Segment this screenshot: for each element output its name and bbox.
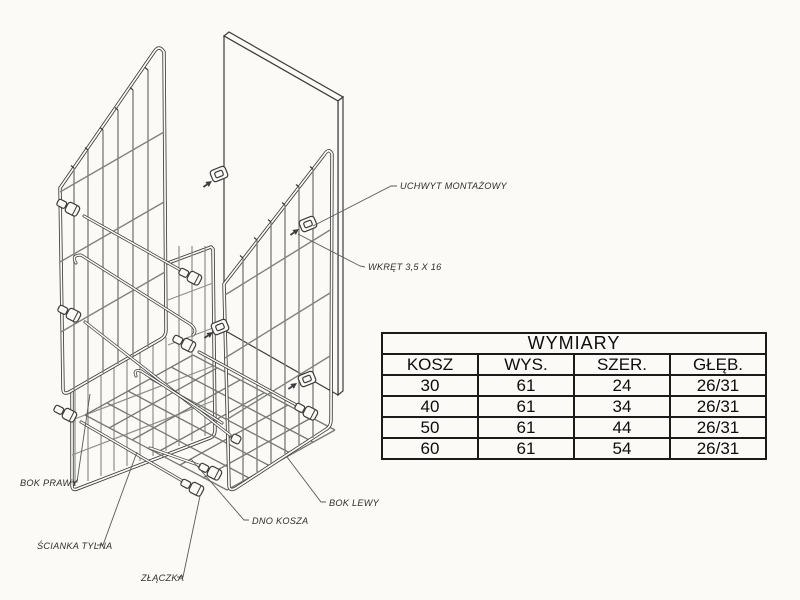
connector-cap-glyph [230,433,242,444]
cell-wys: 61 [478,417,574,438]
label-scianka-tylna: ŚCIANKA TYLNA [37,540,112,551]
connector-zlaczka-glyph [179,477,204,497]
cell-gleb: 26/31 [670,417,766,438]
connector-zlaczka-glyph [56,303,81,323]
table-row: 50 61 44 26/31 [382,417,766,438]
cell-kosz: 60 [382,438,478,459]
table-header-row: KOSZ WYS. SZER. GŁĘB. [382,354,766,375]
table-row: 60 61 54 26/31 [382,438,766,459]
label-bok-prawy: BOK PRAWY [20,478,78,488]
connector-zlaczka-glyph [177,266,202,286]
cell-gleb: 26/31 [670,396,766,417]
cell-szer: 44 [574,417,670,438]
column-header-szer: SZER. [574,354,670,375]
cell-szer: 24 [574,375,670,396]
connector-zlaczka-glyph [52,403,77,423]
label-wkret: WKRĘT 3,5 X 16 [368,262,442,272]
cell-gleb: 26/31 [670,375,766,396]
exploded-view-drawing: UCHWYT MONTAŻOWY WKRĘT 3,5 X 16 BOK PRAW… [0,0,800,600]
column-header-wys: WYS. [478,354,574,375]
cell-kosz: 30 [382,375,478,396]
label-bok-lewy: BOK LEWY [329,498,380,508]
cell-kosz: 50 [382,417,478,438]
panel-bok-prawy [60,48,166,393]
label-dno-kosza: DNO KOSZA [252,516,308,526]
cell-szer: 34 [574,396,670,417]
dimensions-table: WYMIARY KOSZ WYS. SZER. GŁĘB. 30 61 24 2… [381,332,767,460]
column-header-kosz: KOSZ [382,354,478,375]
solid-back-board [224,32,343,395]
cell-wys: 61 [478,438,574,459]
label-uchwyt-montazowy: UCHWYT MONTAŻOWY [400,181,508,191]
leader-zlaczka [177,496,200,577]
cell-szer: 54 [574,438,670,459]
technical-drawing-page: UCHWYT MONTAŻOWY WKRĘT 3,5 X 16 BOK PRAW… [0,0,800,600]
leader-bok-lewy [287,457,326,502]
table-title: WYMIARY [382,333,766,354]
table-row: 40 61 34 26/31 [382,396,766,417]
screw-glyph [202,179,214,190]
table-title-row: WYMIARY [382,333,766,354]
label-zlaczka: ZŁĄCZKA [140,573,184,583]
cell-gleb: 26/31 [670,438,766,459]
column-header-gleb: GŁĘB. [670,354,766,375]
connector-zlaczka-glyph [293,401,318,421]
table-row: 30 61 24 26/31 [382,375,766,396]
cell-kosz: 40 [382,396,478,417]
cell-wys: 61 [478,375,574,396]
leader-scianka-tylna [97,452,137,545]
cell-wys: 61 [478,396,574,417]
leader-bok-prawy [71,394,90,482]
